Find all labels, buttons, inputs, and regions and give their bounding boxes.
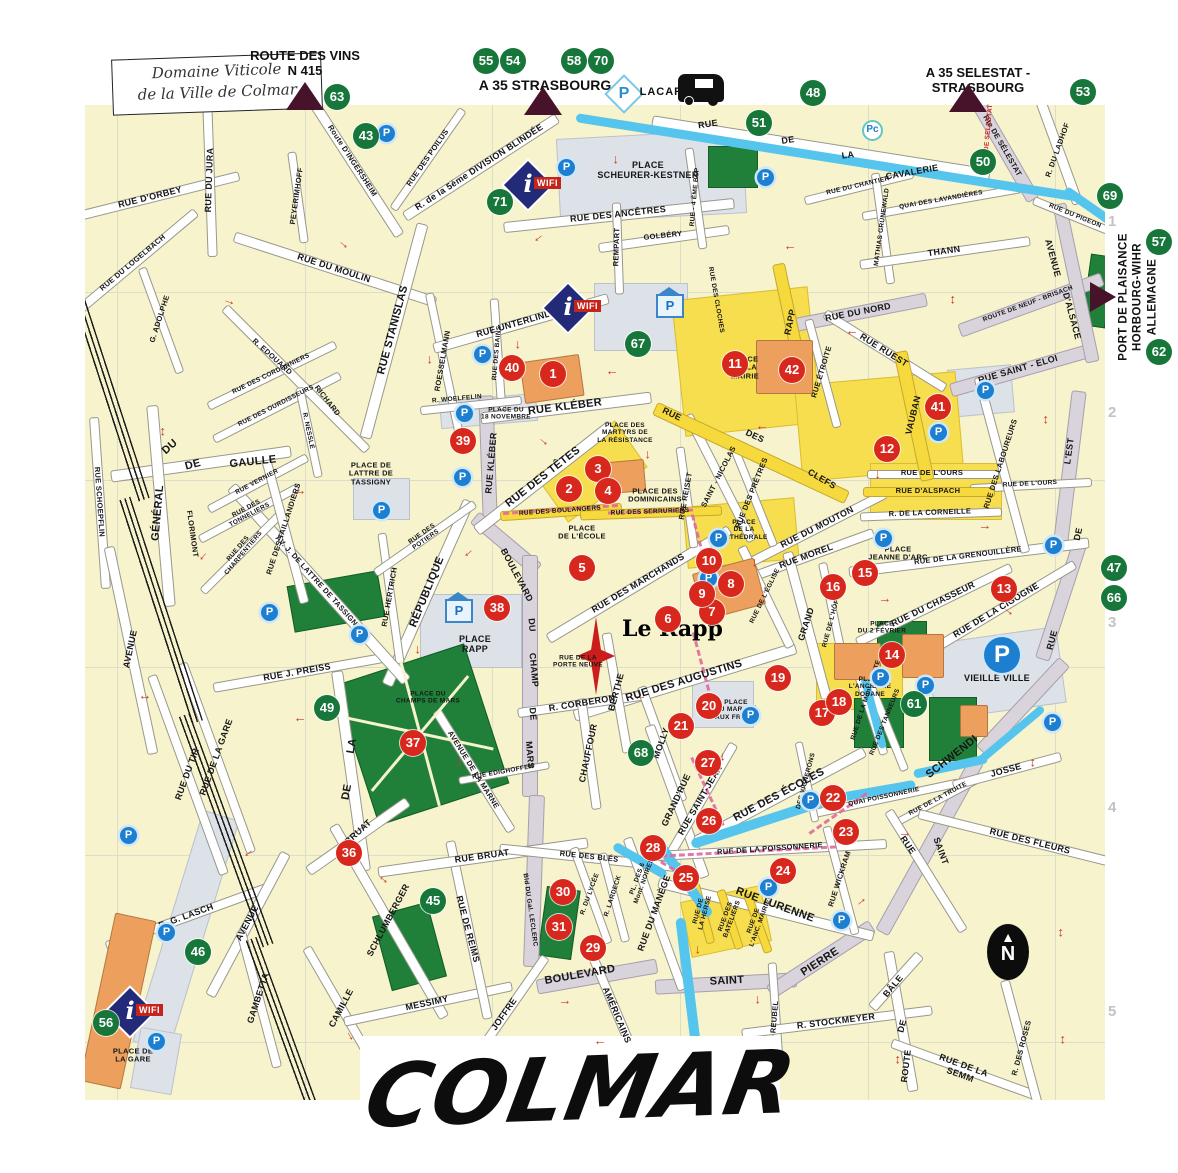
street-label: DU: [160, 437, 181, 457]
street-label: PLACE DU CHAMPS DE MARS: [396, 691, 460, 706]
grid-row-number: 3: [1108, 614, 1116, 631]
street-label: FLORIMONT: [185, 510, 200, 558]
street-label: R. WOELFELIN: [432, 393, 483, 405]
parking-icon: P: [158, 924, 175, 941]
direction-triangle-icon: [286, 82, 324, 110]
street-label: SCHLUMBERGER: [365, 882, 412, 958]
two-way-arrow-icon: ↔: [376, 869, 394, 887]
parking-icon: P: [710, 530, 727, 547]
street-label: RUE VERNIER: [234, 468, 280, 497]
parking-icon: P: [757, 169, 774, 186]
poi-marker-red: 22: [820, 785, 846, 811]
street-label: MATHIAS GRÜNEWALD: [873, 188, 891, 267]
compass-north-icon: ▲ N: [987, 924, 1029, 980]
street-label: RÉPUBLIQUE: [407, 555, 447, 629]
poi-marker-red: 25: [673, 865, 699, 891]
street-label: D'ALSACE: [1061, 291, 1083, 340]
poi-marker-green: 53: [1070, 79, 1096, 105]
poi-marker-red: 36: [336, 840, 362, 866]
street-label: DE: [340, 783, 355, 801]
parking-icon: P: [474, 346, 491, 363]
street-label: L'EST: [1062, 437, 1076, 465]
parking-icon: P: [454, 469, 471, 486]
street-label: CLEFS: [806, 467, 838, 491]
one-way-arrow-icon: →: [879, 592, 892, 605]
poi-marker-green: 43: [353, 123, 379, 149]
street-label: DE: [527, 707, 538, 721]
one-way-arrow-icon: →: [531, 231, 549, 249]
street-label: RUE DE L'OURS: [1003, 479, 1058, 489]
street-label: PLACE DU 18 NOVEMBRE: [481, 407, 531, 422]
parking-icon: P: [930, 424, 947, 441]
street-label: PLACE DES DOMINICAINS: [628, 488, 682, 505]
parking-icon: P: [833, 912, 850, 929]
poi-marker-red: 15: [852, 560, 878, 586]
street-label: AVENUE: [121, 629, 139, 669]
street-label: PLACE DU 2 FÉVRIER: [858, 621, 906, 636]
poi-marker-red: 31: [546, 914, 572, 940]
street-label: R. DU LYCÉE: [579, 872, 601, 916]
wifi-label: WIFI: [574, 300, 601, 312]
street-label: R. DE LA CORNEILLE: [889, 507, 972, 518]
parking-icon: P: [120, 827, 137, 844]
poi-marker-green: 67: [625, 331, 651, 357]
one-way-arrow-icon: →: [644, 449, 657, 462]
street-label: RUE EDIGHOFFEN: [472, 763, 535, 781]
street-label: RUE DE L'OURS: [901, 469, 963, 477]
street-label: R. CORBERON: [548, 693, 616, 713]
poi-marker-red: 23: [833, 819, 859, 845]
poi-marker-red: 24: [770, 858, 796, 884]
street-label: R. LARDECK: [603, 874, 623, 917]
street-label: R. DES ROSES: [1011, 1019, 1034, 1076]
poi-marker-green: 47: [1101, 555, 1127, 581]
poi-marker-green: 69: [1097, 183, 1123, 209]
poi-marker-red: 4: [595, 478, 621, 504]
poi-marker-green: 62: [1146, 339, 1172, 365]
poi-marker-red: 20: [696, 693, 722, 719]
poi-marker-green: 49: [314, 695, 340, 721]
street-label: RICHARD: [312, 384, 341, 418]
poi-marker-red: 29: [580, 935, 606, 961]
street-label: LA: [345, 737, 360, 754]
street-label: GAULLE: [229, 453, 277, 470]
poi-marker-green: 50: [970, 149, 996, 175]
poi-marker-green: 63: [324, 84, 350, 110]
poi-marker-red: 42: [779, 357, 805, 383]
street-label: RUE DE LA SEMM: [934, 1052, 989, 1088]
street-label: JOSSE: [989, 761, 1022, 779]
street-label: RUE: [898, 834, 918, 856]
street-label: SAINT: [931, 836, 950, 866]
two-way-arrow-icon: ↔: [139, 689, 152, 702]
colmar-map-page: Domaine Viticole de la Ville de Colmar R…: [0, 0, 1178, 1173]
street-label: PL. DES 6 Mont. NOIRES: [626, 855, 656, 905]
poi-marker-green: 57: [1146, 229, 1172, 255]
poi-marker-red: 9: [689, 581, 715, 607]
poi-marker-red: 26: [696, 808, 722, 834]
poi-marker-green: 45: [420, 888, 446, 914]
parking-icon: P: [378, 125, 395, 142]
direction-triangle-icon: [949, 84, 987, 112]
street-label: GAMBETTA: [245, 971, 271, 1024]
street-label: RUE DES TANNEURS: [868, 688, 901, 757]
street-label: SCHWENDI: [924, 733, 981, 781]
grid-row-number: 5: [1108, 1003, 1116, 1020]
street-label: VAUBAN: [903, 395, 922, 436]
grid-row-number: 4: [1108, 799, 1116, 816]
poi-marker-green: 70: [588, 48, 614, 74]
one-way-arrow-icon: →: [606, 369, 619, 382]
grid-row-number: 1: [1108, 213, 1116, 230]
street-label: RUE DE L'ANC. MAIRIE: [742, 896, 773, 948]
street-label: RUE DE L'ÉGLISE: [749, 567, 782, 624]
poi-marker-red: 39: [450, 428, 476, 454]
street-label: RUE DE REIMS: [454, 895, 481, 964]
street-label: VIEILLE VILLE: [964, 673, 1030, 683]
street-label: RUE DES MARCHANDS: [590, 551, 687, 615]
one-way-arrow-icon: →: [851, 891, 869, 909]
poi-marker-red: 40: [499, 355, 525, 381]
street-label: RUE SCHOEPFLIN: [92, 467, 105, 538]
street-label: REUBEL: [769, 1000, 780, 1033]
street-label: JOFFRE: [489, 996, 519, 1032]
street-label: PLACE DE LATTRE DE TASSIGNY: [349, 461, 393, 486]
parking-icon: P: [351, 626, 368, 643]
poi-marker-red: 12: [874, 436, 900, 462]
two-way-arrow-icon: ↔: [1029, 757, 1042, 770]
poi-marker-red: 6: [655, 606, 681, 632]
street-label: RUE D'ORBEY: [117, 184, 183, 210]
poi-marker-red: 5: [569, 555, 595, 581]
street-label: QUAI POISSONNERIE: [848, 786, 921, 808]
street-label: R. STOCKMEYER: [796, 1011, 875, 1031]
street-label: PLACE DE L'ÉCOLE: [558, 525, 606, 542]
one-way-arrow-icon: →: [754, 994, 767, 1007]
street-label: THANN: [927, 244, 961, 259]
street-label: PLACE SCHEURER-KESTNER: [597, 160, 698, 180]
street-label: PLACE DE LA GARE: [113, 1048, 153, 1065]
one-way-arrow-icon: →: [461, 546, 479, 564]
poi-marker-green: 66: [1101, 585, 1127, 611]
street-label: RUE: [697, 118, 718, 131]
street-label: RUE STANISLAS: [375, 284, 411, 376]
one-way-arrow-icon: →: [536, 431, 554, 449]
parking-covered-icon: P: [656, 294, 684, 318]
street-label: RUE REISET: [678, 472, 695, 521]
street-label: AVENUE: [1043, 238, 1063, 278]
street-label: RUE SAINT - ELOI: [977, 353, 1059, 385]
poi-marker-red: 41: [925, 394, 951, 420]
parking-icon: P: [373, 502, 390, 519]
street-label: AVENUE: [233, 904, 260, 943]
two-way-arrow-icon: ↔: [1057, 927, 1070, 940]
street-label: RUE DU LOGELBACH: [98, 233, 167, 293]
street-label: QUAI DES LAVANDIÈRES: [899, 189, 984, 211]
street-label: GÉNÉRAL: [149, 485, 166, 542]
one-way-arrow-icon: →: [294, 716, 307, 729]
two-way-arrow-icon: ↔: [1042, 414, 1055, 427]
sign-route-des-vins: ROUTE DES VINS N 415: [250, 48, 360, 78]
street-label: RUE DES POTIERS: [407, 522, 441, 552]
street-label: RUE DES BATELIERS: [715, 897, 742, 939]
street-label: GOLBÉRY: [643, 230, 683, 242]
two-way-arrow-icon: ↔: [1059, 1034, 1072, 1047]
parking-icon: P: [456, 405, 473, 422]
poi-marker-red: 18: [826, 689, 852, 715]
street-label: ROUTE DE NEUF - BRISACH: [982, 284, 1074, 323]
street-label: RUE DE LA POISSONNERIE: [717, 841, 823, 857]
poi-marker-red: 28: [640, 835, 666, 861]
poi-marker-green: 58: [561, 48, 587, 74]
street-label: RUE DES FLEURS: [989, 826, 1072, 856]
one-way-arrow-icon: →: [751, 557, 764, 570]
street-label: RUE DE LA GARE: [197, 717, 234, 796]
street-label: MESSIMY: [405, 994, 450, 1013]
parking-icon: P: [875, 530, 892, 547]
street-label: RUE DU NORD: [824, 301, 892, 324]
two-way-arrow-icon: ↔: [159, 426, 172, 439]
parking-icon: P: [148, 1033, 165, 1050]
poi-marker-green: 51: [746, 110, 772, 136]
one-way-arrow-icon: →: [222, 292, 239, 309]
poi-marker-red: 2: [556, 476, 582, 502]
parking-icon: P: [872, 669, 889, 686]
one-way-arrow-icon: →: [694, 944, 707, 957]
two-way-arrow-icon: ↔: [949, 294, 962, 307]
poi-marker-green: 68: [628, 740, 654, 766]
street-label: RUE RUEST: [858, 331, 910, 369]
poi-marker-red: 14: [879, 642, 905, 668]
street-label: RUE HERTRICH: [381, 567, 400, 628]
street-label: DE: [781, 134, 795, 146]
street-label: BÂLE: [881, 973, 905, 999]
street-label: RUE KLÉBER: [483, 432, 498, 494]
wifi-label: WIFI: [534, 177, 561, 189]
one-way-arrow-icon: →: [594, 1039, 607, 1052]
poi-marker-red: 13: [991, 576, 1017, 602]
parking-icon: P: [977, 382, 994, 399]
street-label: GRAND: [796, 606, 816, 642]
street-label: SAINT: [709, 974, 744, 988]
map-title: COLMAR: [358, 1035, 778, 1146]
street-label: PLACE DES MARTYRS DE LA RÉSISTANCE: [597, 422, 653, 444]
street-label: RAPP: [782, 308, 797, 336]
direction-triangle-icon: [524, 87, 562, 115]
street-label: DE: [184, 457, 203, 473]
street-label: LA: [841, 149, 855, 161]
street-label: RUE DU MOUTON: [779, 504, 856, 550]
street-label: RUE DE LA HERSE: [690, 893, 713, 931]
street-label: RUE DES BLÉS: [559, 850, 619, 865]
parking-vieille-ville-icon: P: [984, 637, 1020, 673]
poi-marker-green: 71: [487, 189, 513, 215]
parking-covered-icon: P: [445, 599, 473, 623]
street-label: RUE DU CHANTIER: [826, 175, 891, 197]
street-label: Bld DU Gal. LECLERC: [521, 873, 538, 947]
street-label: CHAUFFOUR: [577, 723, 599, 783]
street-label: RUE BRUAT: [454, 847, 510, 865]
street-label: RUE DU PIGEON: [1048, 202, 1103, 230]
street-label: CAVALERIE: [885, 162, 939, 181]
direction-triangle-icon: [1090, 282, 1116, 312]
poi-marker-green: 46: [185, 939, 211, 965]
street-label: RUE KLÉBER: [527, 396, 602, 417]
one-way-arrow-icon: →: [979, 519, 992, 532]
parking-couvert-icon: Pc: [862, 120, 883, 141]
street-label: REMPART: [612, 228, 622, 267]
parking-icon: P: [261, 604, 278, 621]
parking-icon: P: [1045, 537, 1062, 554]
poi-marker-red: 8: [718, 571, 744, 597]
poi-marker-green: 56: [93, 1010, 119, 1036]
street-label: BOULEVARD: [544, 963, 617, 988]
wifi-label: WIFI: [136, 1004, 163, 1016]
poi-marker-red: 10: [696, 548, 722, 574]
street-label: RUE DU JURA: [203, 147, 215, 212]
parking-icon: P: [558, 159, 575, 176]
street-label: R. NESSLÉ: [301, 412, 316, 450]
street-label: CHAMP: [527, 652, 540, 687]
poi-marker-green: 55: [473, 48, 499, 74]
street-label: RUE DE LA GRENOUILLÈRE: [914, 545, 1023, 567]
poi-marker-green: 54: [500, 48, 526, 74]
one-way-arrow-icon: →: [846, 329, 859, 342]
one-way-arrow-icon: →: [241, 846, 259, 864]
one-way-arrow-icon: →: [559, 994, 572, 1007]
street-label: DE: [895, 1018, 908, 1033]
street-label: SAINT - NICOLAS: [700, 445, 738, 509]
street-label: BOULEVARD: [499, 547, 536, 604]
street-label: DU: [526, 618, 537, 632]
one-way-arrow-icon: →: [343, 1026, 361, 1044]
street-label: DE: [1072, 527, 1085, 542]
one-way-arrow-icon: →: [784, 244, 797, 257]
one-way-arrow-icon: →: [514, 339, 527, 352]
poi-marker-green: 48: [800, 80, 826, 106]
street-label: RUE DES TONNELIERS: [225, 495, 271, 529]
one-way-arrow-icon: →: [336, 234, 354, 252]
street-label: PEYERIMHOFF: [289, 167, 305, 225]
street-label: G. ADOLPHE: [148, 294, 171, 344]
street-label: RUE DES CHARPENTIERS: [218, 525, 264, 576]
street-label: RUE D'ALSPACH: [896, 487, 961, 495]
street-label: PLACE RAPP: [459, 634, 491, 654]
poi-marker-red: 16: [820, 574, 846, 600]
map-overlay: Domaine Viticole de la Ville de Colmar R…: [0, 0, 1178, 1173]
street-label: AV. J. DE LATTRE DE TASSIGNY: [273, 534, 362, 632]
street-label: RUE DES LABOUREURS: [983, 418, 1020, 510]
street-label: RUE J. PREISS: [262, 661, 331, 683]
grid-row-number: 2: [1108, 404, 1116, 421]
street-label: RUE DE LA PORTE NEUVE: [553, 655, 603, 670]
poi-marker-red: 27: [695, 750, 721, 776]
street-label: R. DU LADHOF: [1044, 122, 1072, 179]
poi-marker-green: 61: [901, 691, 927, 717]
street-label: RUE DU MOULIN: [296, 251, 372, 284]
street-label: PIERRE: [799, 945, 842, 979]
street-label: CAMILLE: [327, 987, 356, 1029]
street-label: RUE: [661, 405, 683, 423]
poi-marker-red: 30: [550, 879, 576, 905]
street-label: RUE DES ANCÊTRES: [569, 204, 666, 224]
street-label: RUE DES BOULANGERS: [519, 505, 602, 518]
one-way-arrow-icon: →: [874, 469, 887, 482]
street-label: RUE: [1045, 629, 1060, 651]
bus-icon: [678, 74, 724, 102]
street-label: RUE DES AUGUSTINS: [624, 657, 744, 704]
poi-marker-red: 37: [400, 730, 426, 756]
street-label: RUE ÉTROITE: [810, 345, 834, 399]
poi-marker-red: 19: [765, 665, 791, 691]
street-label: RUE DES CLOCHES: [707, 266, 726, 333]
poi-marker-red: 38: [484, 595, 510, 621]
poi-marker-red: 21: [668, 713, 694, 739]
parking-icon: P: [1044, 714, 1061, 731]
poi-marker-red: 1: [540, 361, 566, 387]
street-label: RUE DES POILUS: [405, 128, 451, 188]
street-label: RUE WICKRAM: [827, 850, 853, 908]
parking-icon: P: [742, 707, 759, 724]
parking-icon: P: [802, 792, 819, 809]
poi-marker-red: 11: [722, 351, 748, 377]
one-way-arrow-icon: →: [414, 644, 427, 657]
